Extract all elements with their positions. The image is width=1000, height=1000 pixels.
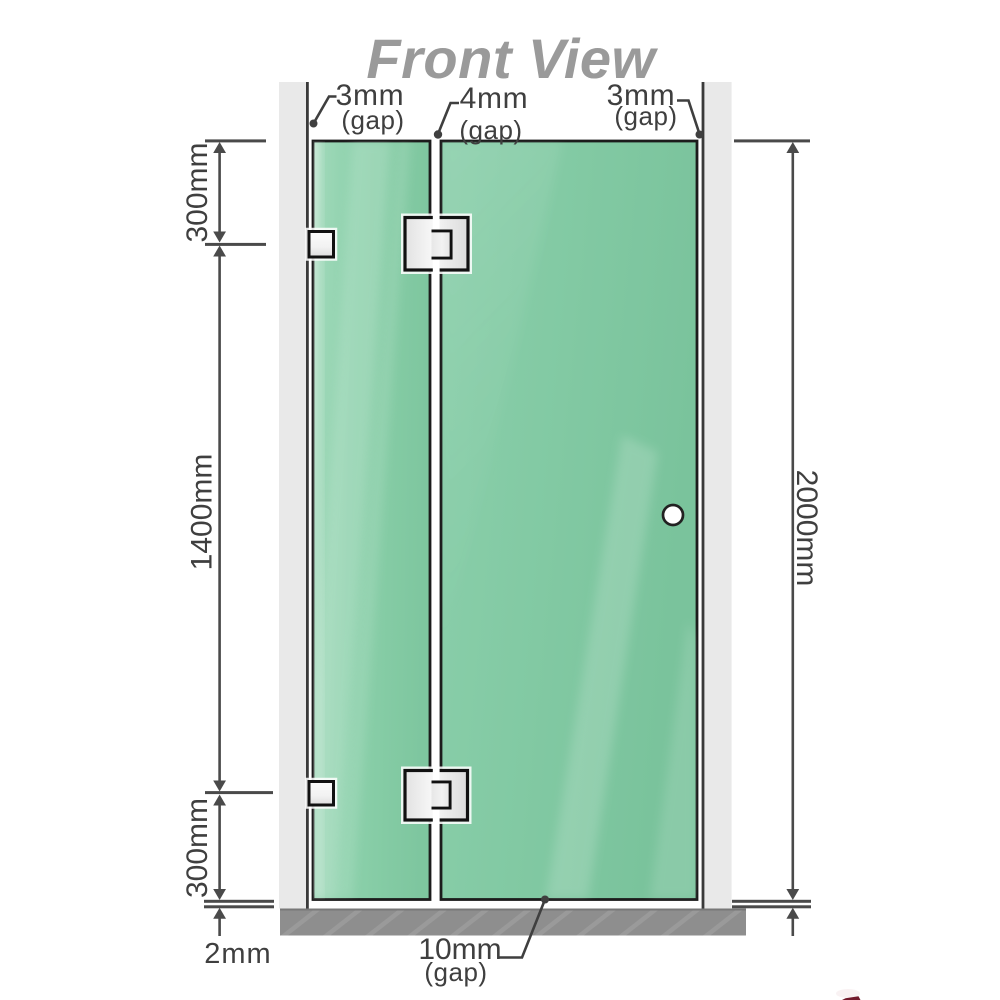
svg-text:300mm: 300mm (181, 798, 214, 898)
svg-text:(gap): (gap) (341, 105, 404, 135)
svg-text:2mm: 2mm (204, 938, 271, 970)
svg-text:1400mm: 1400mm (186, 454, 219, 571)
svg-text:300mm: 300mm (181, 142, 214, 242)
svg-text:(gap): (gap) (614, 101, 677, 131)
svg-text:(gap): (gap) (459, 115, 522, 145)
svg-text:4mm: 4mm (460, 82, 529, 115)
svg-text:(gap): (gap) (424, 957, 487, 987)
svg-text:2000mm: 2000mm (790, 470, 823, 587)
